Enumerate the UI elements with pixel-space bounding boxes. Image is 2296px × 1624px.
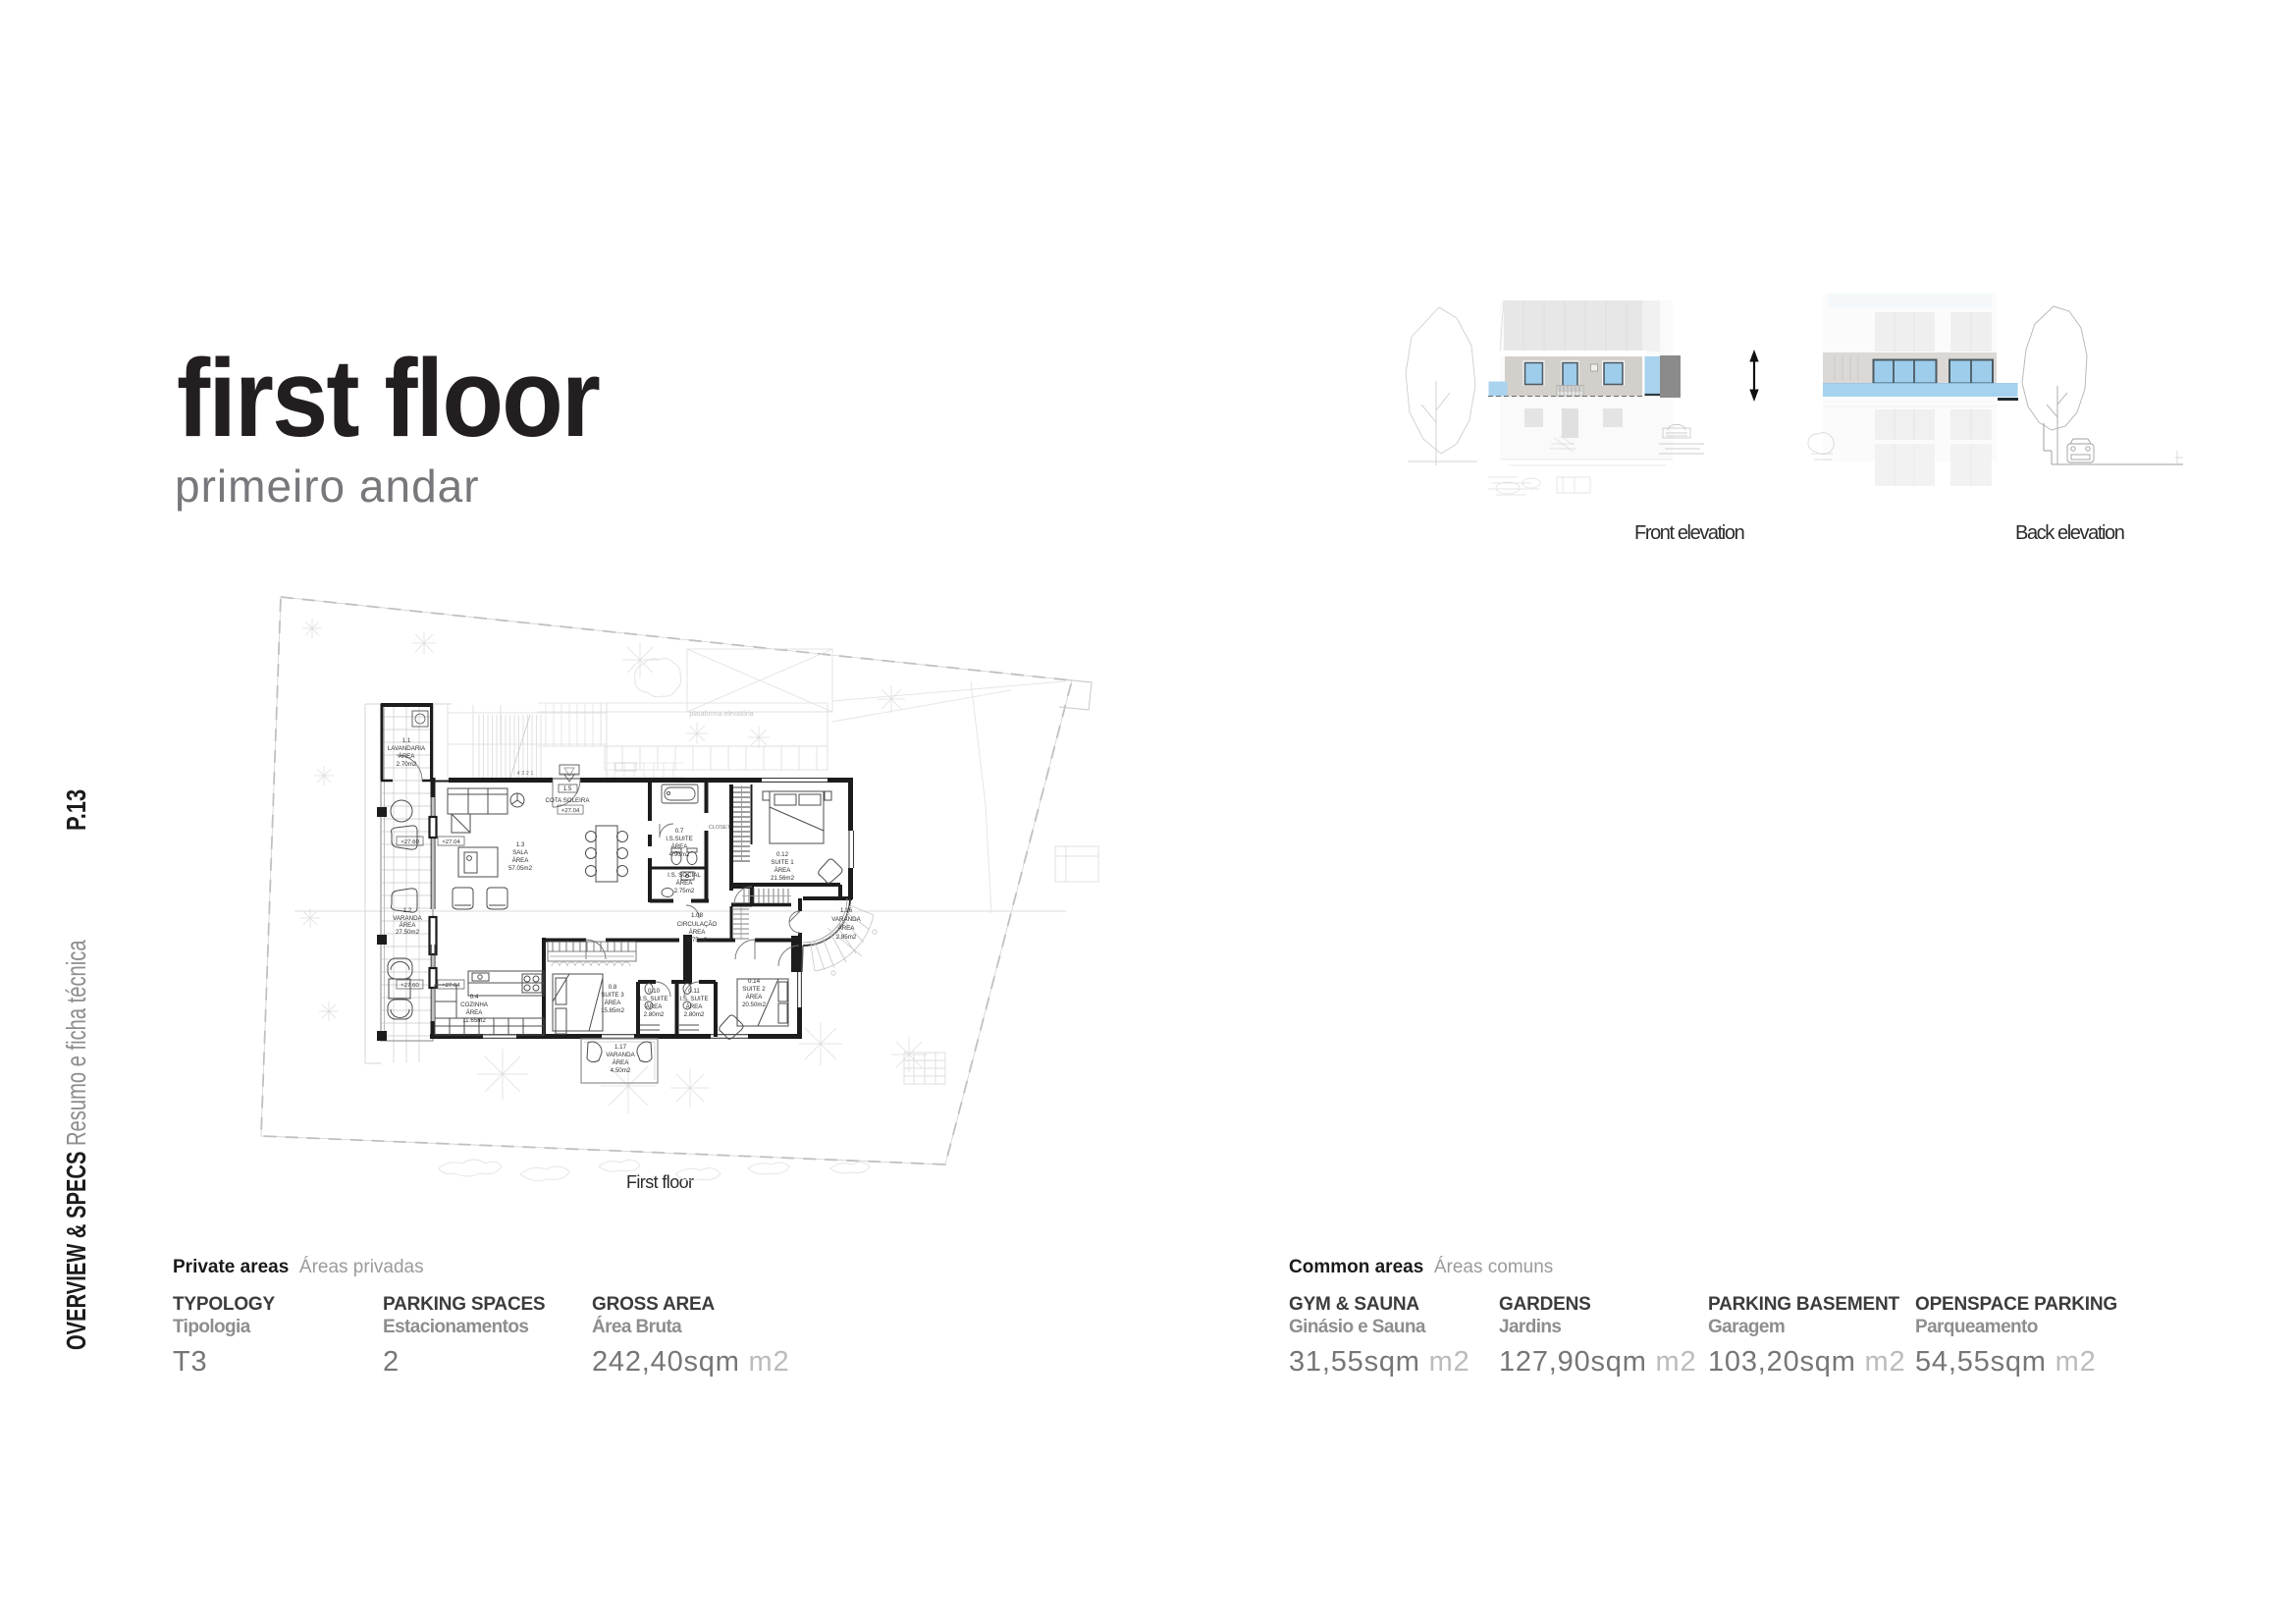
svg-text:+27.04: +27.04 xyxy=(442,983,460,989)
svg-text:+27.04: +27.04 xyxy=(561,808,580,814)
svg-text:+27.60: +27.60 xyxy=(400,983,419,989)
svg-text:+27.04: +27.04 xyxy=(442,839,460,845)
svg-text:+27.60: +27.60 xyxy=(400,839,419,845)
